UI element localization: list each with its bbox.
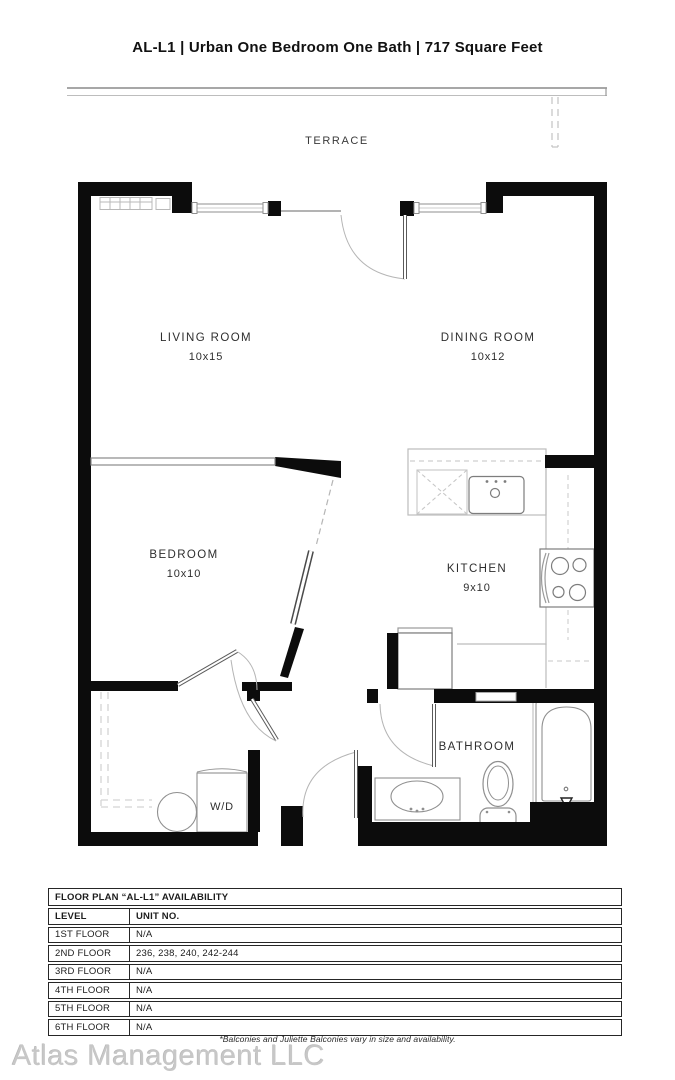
bedroom-sliding-door — [293, 480, 333, 624]
terrace-windows — [192, 203, 486, 214]
table-header-row: LEVEL UNIT NO. — [48, 908, 622, 925]
terrace-label: TERRACE — [305, 135, 369, 147]
vanity-sink — [375, 778, 460, 820]
bath-niche-front — [476, 693, 516, 702]
toilet — [480, 762, 516, 830]
level-cell: 2ND FLOOR — [49, 946, 130, 961]
level-cell: 3RD FLOOR — [49, 965, 130, 980]
bathroom-label: BATHROOM — [439, 741, 516, 753]
laundry-basket — [158, 793, 197, 832]
level-cell: 6TH FLOOR — [49, 1020, 130, 1035]
unit-cell: N/A — [130, 929, 621, 940]
kitchen-dims: 9x10 — [463, 582, 490, 594]
baseboard-heater — [100, 198, 170, 210]
floorplan-page: AL-L1 | Urban One Bedroom One Bath | 717… — [0, 0, 675, 1080]
kitchen-sink — [469, 477, 524, 514]
table-row: 1ST FLOOR N/A — [48, 927, 622, 944]
dining-room-label: DINING ROOM — [441, 332, 536, 344]
wd-label: W/D — [210, 801, 234, 813]
stove — [540, 549, 594, 607]
entry-door — [303, 750, 356, 818]
watermark: Atlas Management LLC — [12, 1040, 325, 1073]
bathtub — [533, 701, 597, 808]
unit-cell: N/A — [130, 1022, 621, 1033]
terrace: TERRACE — [67, 88, 607, 147]
level-cell: 5TH FLOOR — [49, 1002, 130, 1017]
table-row: 4TH FLOOR N/A — [48, 982, 622, 999]
unit-cell: 236, 238, 240, 242-244 — [130, 948, 621, 959]
table-row: 5TH FLOOR N/A — [48, 1001, 622, 1018]
level-cell: 4TH FLOOR — [49, 983, 130, 998]
unit-cell: N/A — [130, 966, 621, 977]
floor-plan-svg: TERRACE — [0, 80, 675, 870]
walls — [78, 182, 607, 846]
terrace-door — [341, 215, 405, 279]
table-title: FLOOR PLAN “AL-L1” AVAILABILITY — [49, 892, 228, 903]
page-title: AL-L1 | Urban One Bedroom One Bath | 717… — [0, 39, 675, 56]
half-wall — [91, 458, 275, 465]
living-room-label: LIVING ROOM — [160, 332, 252, 344]
refrigerator — [398, 628, 452, 689]
room-labels: LIVING ROOM 10x15 DINING ROOM 10x12 BEDR… — [149, 332, 535, 813]
table-row: 3RD FLOOR N/A — [48, 964, 622, 981]
living-room-dims: 10x15 — [189, 351, 223, 363]
level-cell: 1ST FLOOR — [49, 928, 130, 943]
bathroom-door — [380, 704, 434, 767]
dining-room-dims: 10x12 — [471, 351, 505, 363]
table-title-row: FLOOR PLAN “AL-L1” AVAILABILITY — [48, 888, 622, 906]
table-row: 2ND FLOOR 236, 238, 240, 242-244 — [48, 945, 622, 962]
column-header-level: LEVEL — [49, 909, 130, 924]
column-header-unit-no: UNIT NO. — [130, 911, 621, 922]
bedroom-dims: 10x10 — [167, 568, 201, 580]
unit-cell: N/A — [130, 1003, 621, 1014]
kitchen-label: KITCHEN — [447, 563, 507, 575]
closet-rod — [101, 692, 152, 807]
dishwasher — [417, 470, 467, 514]
availability-table: FLOOR PLAN “AL-L1” AVAILABILITY LEVEL UN… — [48, 888, 622, 1038]
unit-cell: N/A — [130, 985, 621, 996]
bedroom-label: BEDROOM — [149, 549, 218, 561]
